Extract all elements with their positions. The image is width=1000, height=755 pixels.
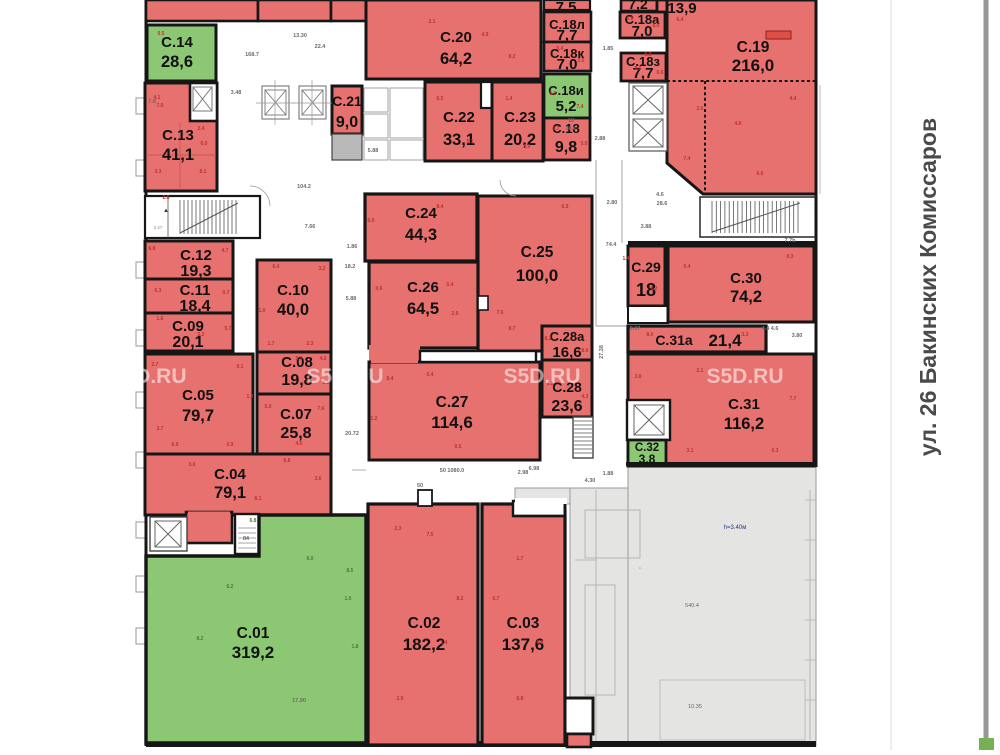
svg-text:4.0: 4.0 <box>735 121 742 127</box>
svg-text:10.35: 10.35 <box>688 704 702 710</box>
svg-text:1.0: 1.0 <box>524 144 531 150</box>
svg-text:5,2: 5,2 <box>556 98 577 115</box>
svg-text:23,6: 23,6 <box>551 398 582 415</box>
svg-text:20.72: 20.72 <box>345 431 359 437</box>
svg-text:1.4: 1.4 <box>506 96 513 102</box>
svg-text:8.0: 8.0 <box>653 23 660 29</box>
svg-text:5.1: 5.1 <box>467 139 474 145</box>
svg-text:8.6: 8.6 <box>635 66 642 72</box>
svg-text:50: 50 <box>417 483 423 489</box>
svg-text:С.31: С.31 <box>728 396 760 413</box>
svg-text:114,6: 114,6 <box>431 413 473 432</box>
svg-text:5.88: 5.88 <box>346 296 357 302</box>
svg-text:4.4: 4.4 <box>790 96 797 102</box>
svg-text:С.05: С.05 <box>182 387 214 404</box>
svg-text:27.38: 27.38 <box>599 345 605 359</box>
svg-text:3.8: 3.8 <box>635 374 642 380</box>
svg-text:С.12: С.12 <box>180 247 212 264</box>
svg-text:40,0: 40,0 <box>277 301 309 319</box>
svg-text:0.3: 0.3 <box>787 254 794 260</box>
svg-text:18,4: 18,4 <box>179 298 210 315</box>
svg-text:8.5: 8.5 <box>347 568 354 574</box>
svg-text:16,6: 16,6 <box>552 344 581 361</box>
svg-text:С.31а: С.31а <box>655 332 693 348</box>
svg-text:0.4: 0.4 <box>684 264 691 270</box>
svg-text:1.7: 1.7 <box>517 556 524 562</box>
svg-text:44,3: 44,3 <box>405 226 437 244</box>
svg-text:С.28а: С.28а <box>550 329 585 344</box>
svg-text:С.04: С.04 <box>214 466 246 483</box>
svg-text:13,9: 13,9 <box>667 0 696 17</box>
svg-text:С.26: С.26 <box>407 279 439 296</box>
svg-text:100,0: 100,0 <box>516 266 559 285</box>
svg-text:7.7: 7.7 <box>790 396 797 402</box>
svg-text:25,8: 25,8 <box>280 425 311 442</box>
svg-text:1.4: 1.4 <box>623 256 630 262</box>
svg-text:8.2: 8.2 <box>545 336 552 342</box>
svg-text:3.88: 3.88 <box>641 224 652 230</box>
svg-text:8.6: 8.6 <box>582 348 589 354</box>
svg-text:4.3: 4.3 <box>582 394 589 400</box>
svg-text:С.10: С.10 <box>277 282 309 299</box>
svg-text:С.24: С.24 <box>405 205 437 222</box>
svg-text:С.29: С.29 <box>631 259 661 275</box>
svg-text:6.2: 6.2 <box>227 584 234 590</box>
svg-text:0.6: 0.6 <box>376 286 383 292</box>
svg-text:6.98: 6.98 <box>529 466 540 472</box>
svg-text:2.80: 2.80 <box>607 200 618 206</box>
svg-text:С.02: С.02 <box>408 615 441 632</box>
svg-text:1.7: 1.7 <box>268 341 275 347</box>
svg-text:1.7: 1.7 <box>553 126 560 132</box>
svg-text:С.23: С.23 <box>504 109 536 126</box>
svg-text:3,8: 3,8 <box>639 452 656 466</box>
svg-text:4.7: 4.7 <box>222 248 229 254</box>
svg-text:S5D.RU: S5D.RU <box>706 365 783 388</box>
svg-text:6.9: 6.9 <box>627 16 634 22</box>
svg-text:3.7: 3.7 <box>157 426 164 432</box>
svg-text:8.0: 8.0 <box>647 332 654 338</box>
svg-text:3.3: 3.3 <box>742 332 749 338</box>
svg-text:7,0: 7,0 <box>557 56 578 73</box>
svg-text:С.03: С.03 <box>507 615 540 632</box>
svg-text:1.0: 1.0 <box>345 596 352 602</box>
svg-text:1.6: 1.6 <box>157 316 164 322</box>
svg-text:104.2: 104.2 <box>297 184 311 190</box>
svg-text:4.6: 4.6 <box>656 192 664 198</box>
svg-text:7.7b: 7.7b <box>784 238 796 244</box>
svg-text:2.3: 2.3 <box>307 341 314 347</box>
svg-text:8.1: 8.1 <box>200 169 207 175</box>
svg-text:2.1: 2.1 <box>697 368 704 374</box>
svg-text:1.2: 1.2 <box>247 394 254 400</box>
svg-text:С.14: С.14 <box>161 34 193 51</box>
svg-text:С.25: С.25 <box>521 244 554 261</box>
svg-text:S5D.RU: S5D.RU <box>503 365 580 388</box>
svg-text:6.8: 6.8 <box>517 696 524 702</box>
svg-text:▲: ▲ <box>163 208 169 214</box>
svg-text:3.6: 3.6 <box>315 476 322 482</box>
svg-text:4.9: 4.9 <box>482 32 489 38</box>
svg-text:22.4: 22.4 <box>315 44 327 50</box>
svg-text:7.66: 7.66 <box>305 224 316 230</box>
svg-text:5.0: 5.0 <box>581 141 588 147</box>
svg-text:С.21: С.21 <box>332 93 362 109</box>
svg-text:С.07: С.07 <box>280 406 312 423</box>
svg-text:3.1: 3.1 <box>687 448 694 454</box>
svg-text:6.7: 6.7 <box>493 596 500 602</box>
svg-text:74.4: 74.4 <box>606 242 618 248</box>
svg-text:7.6: 7.6 <box>497 310 504 316</box>
svg-text:7.5: 7.5 <box>427 532 434 538</box>
svg-text:6.0: 6.0 <box>368 218 375 224</box>
svg-text:7.4: 7.4 <box>684 156 691 162</box>
svg-text:5.88: 5.88 <box>368 148 379 154</box>
svg-text:5.9: 5.9 <box>265 404 272 410</box>
svg-text:0.3: 0.3 <box>772 448 779 454</box>
svg-text:6.5: 6.5 <box>437 96 444 102</box>
svg-text:2.4: 2.4 <box>198 126 205 132</box>
svg-text:3.5: 3.5 <box>578 58 585 64</box>
svg-text:8.7: 8.7 <box>509 326 516 332</box>
svg-text:7.4: 7.4 <box>577 104 584 110</box>
svg-text:1.4: 1.4 <box>441 640 448 646</box>
svg-text:С.27: С.27 <box>436 394 469 411</box>
svg-text:28.6: 28.6 <box>657 201 668 207</box>
svg-text:3.80: 3.80 <box>792 333 803 339</box>
svg-text:4.0: 4.0 <box>320 356 327 362</box>
svg-text:▫: ▫ <box>639 566 641 572</box>
svg-text:1.86: 1.86 <box>347 244 358 250</box>
svg-text:h=3.40м: h=3.40м <box>724 525 747 531</box>
svg-text:7.6: 7.6 <box>318 406 325 412</box>
svg-text:182,2: 182,2 <box>403 635 446 654</box>
svg-text:С.11: С.11 <box>180 282 211 299</box>
svg-text:7,2: 7,2 <box>628 0 648 12</box>
svg-text:1.0: 1.0 <box>259 308 266 314</box>
svg-text:6.2: 6.2 <box>651 286 658 292</box>
svg-text:50 1080.0: 50 1080.0 <box>440 468 464 474</box>
svg-text:8.2: 8.2 <box>509 54 516 60</box>
svg-text:0.1: 0.1 <box>237 364 244 370</box>
svg-text:6.0: 6.0 <box>201 141 208 147</box>
svg-text:6.9: 6.9 <box>172 442 179 448</box>
svg-text:5.4: 5.4 <box>447 282 454 288</box>
svg-text:13.30: 13.30 <box>293 33 307 39</box>
svg-text:С.20: С.20 <box>440 29 472 46</box>
svg-text:5.0: 5.0 <box>296 356 303 362</box>
svg-text:4.30: 4.30 <box>585 478 596 484</box>
svg-text:28,6: 28,6 <box>161 53 193 71</box>
svg-text:0.7: 0.7 <box>223 290 230 296</box>
svg-text:6.4: 6.4 <box>677 17 684 23</box>
svg-text:64,2: 64,2 <box>440 50 472 68</box>
svg-text:4.6: 4.6 <box>296 441 303 447</box>
svg-text:6.6: 6.6 <box>657 70 664 76</box>
svg-text:18.2: 18.2 <box>345 264 356 270</box>
svg-text:79,1: 79,1 <box>214 484 246 502</box>
svg-text:5.4: 5.4 <box>557 46 564 52</box>
svg-text:17.90: 17.90 <box>292 698 306 704</box>
svg-text:6.0: 6.0 <box>307 556 314 562</box>
svg-text:9,8: 9,8 <box>555 139 577 156</box>
svg-text:74,2: 74,2 <box>730 288 762 306</box>
svg-text:1.2: 1.2 <box>371 416 378 422</box>
svg-text:3.3: 3.3 <box>155 169 162 175</box>
svg-text:2.98: 2.98 <box>518 470 529 476</box>
svg-text:2.9: 2.9 <box>452 311 459 317</box>
svg-text:6.4: 6.4 <box>273 264 280 270</box>
svg-text:8.4: 8.4 <box>387 376 394 382</box>
svg-text:6.8: 6.8 <box>284 458 291 464</box>
svg-text:5.2: 5.2 <box>198 332 205 338</box>
svg-text:С.13: С.13 <box>162 127 194 144</box>
svg-text:20,2: 20,2 <box>504 131 536 149</box>
svg-text:18: 18 <box>568 118 574 124</box>
svg-text:9,0: 9,0 <box>336 114 358 131</box>
svg-text:8.4: 8.4 <box>437 204 444 210</box>
svg-text:216,0: 216,0 <box>732 56 775 75</box>
svg-text:2.6: 2.6 <box>697 106 704 112</box>
svg-text:21,4: 21,4 <box>708 331 742 350</box>
svg-text:0.5: 0.5 <box>158 31 165 37</box>
svg-text:3.2: 3.2 <box>319 266 326 272</box>
svg-text:8.2: 8.2 <box>197 636 204 642</box>
svg-text:5.0: 5.0 <box>550 91 557 97</box>
svg-text:38.1: 38.1 <box>566 126 577 132</box>
svg-text:84: 84 <box>243 536 250 542</box>
svg-text:6.8: 6.8 <box>149 246 156 252</box>
svg-text:8.07: 8.07 <box>630 326 641 332</box>
svg-text:6.3: 6.3 <box>537 640 544 646</box>
svg-text:S5D.RU: S5D.RU <box>109 365 186 388</box>
svg-text:116,2: 116,2 <box>724 415 764 433</box>
svg-text:5.7: 5.7 <box>225 326 232 332</box>
svg-text:168.7: 168.7 <box>245 52 259 58</box>
svg-text:2.6: 2.6 <box>163 195 170 201</box>
svg-text:6.3: 6.3 <box>155 288 162 294</box>
svg-text:С.22: С.22 <box>443 109 475 126</box>
svg-text:7.0: 7.0 <box>157 103 164 109</box>
svg-text:1.88: 1.88 <box>603 471 614 477</box>
svg-text:4.4 4.6: 4.4 4.6 <box>762 326 779 332</box>
svg-text:S5D.RU: S5D.RU <box>306 365 383 388</box>
svg-text:0.4: 0.4 <box>427 372 434 378</box>
svg-text:ул. 26 Бакинских Комиссаров: ул. 26 Бакинских Комиссаров <box>915 118 941 456</box>
svg-text:64,5: 64,5 <box>407 300 439 318</box>
svg-text:1.8: 1.8 <box>352 644 359 650</box>
svg-text:3.48: 3.48 <box>231 90 242 96</box>
svg-text:5.3: 5.3 <box>645 52 652 58</box>
svg-text:6.8: 6.8 <box>250 518 257 524</box>
svg-text:7.8: 7.8 <box>148 99 156 105</box>
svg-text:19,3: 19,3 <box>180 263 211 280</box>
svg-text:2.9: 2.9 <box>397 696 404 702</box>
svg-text:С.01: С.01 <box>237 625 270 642</box>
svg-text:3.0: 3.0 <box>189 462 196 468</box>
svg-text:6.6: 6.6 <box>757 171 764 177</box>
svg-text:С.30: С.30 <box>730 270 762 287</box>
svg-text:2.27: 2.27 <box>154 225 163 230</box>
svg-text:6.9: 6.9 <box>562 204 569 210</box>
svg-text:1.85: 1.85 <box>603 46 614 52</box>
svg-text:С.19: С.19 <box>737 39 770 56</box>
svg-text:79,7: 79,7 <box>182 407 214 425</box>
svg-text:0.9: 0.9 <box>227 442 234 448</box>
svg-text:2.1: 2.1 <box>429 19 436 25</box>
svg-text:0.5: 0.5 <box>455 444 462 450</box>
svg-text:7,7: 7,7 <box>557 27 578 44</box>
svg-text:8.2: 8.2 <box>457 596 464 602</box>
svg-text:41,1: 41,1 <box>162 146 194 164</box>
svg-text:8.1: 8.1 <box>255 496 262 502</box>
svg-text:319,2: 319,2 <box>232 643 275 662</box>
svg-text:540.4: 540.4 <box>685 603 699 609</box>
svg-text:7,0: 7,0 <box>632 23 653 40</box>
svg-text:2.3: 2.3 <box>395 526 402 532</box>
svg-text:2.88: 2.88 <box>595 136 606 142</box>
